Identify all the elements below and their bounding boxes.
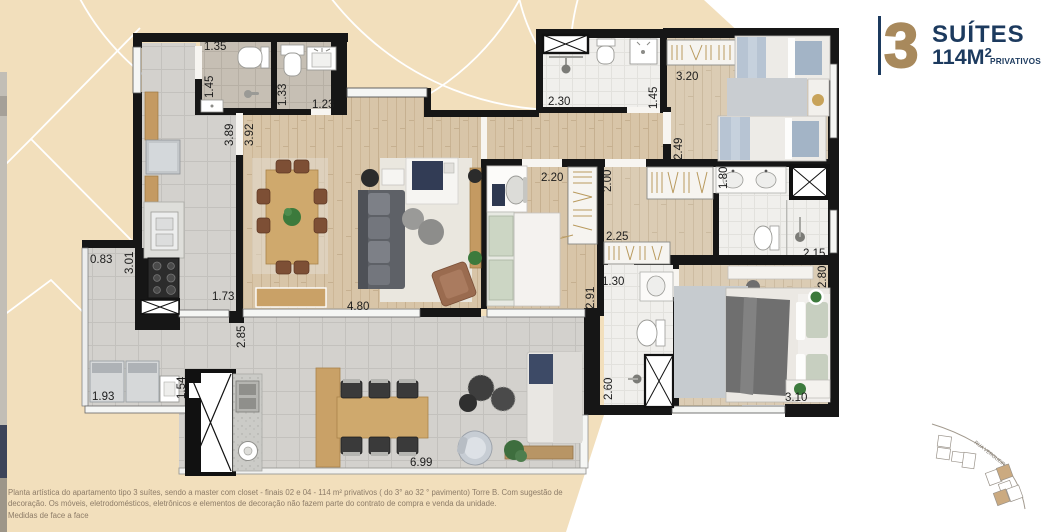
- svg-text:2.85: 2.85: [236, 326, 248, 348]
- svg-text:2.15: 2.15: [803, 248, 825, 260]
- svg-text:0.83: 0.83: [90, 254, 112, 266]
- svg-text:2.00: 2.00: [602, 170, 614, 192]
- svg-text:2.60: 2.60: [603, 378, 615, 400]
- svg-text:2.49: 2.49: [673, 138, 685, 160]
- svg-text:Planta artística do apartament: Planta artística do apartamento tipo 3 s…: [8, 488, 563, 497]
- svg-text:2.20: 2.20: [541, 172, 563, 184]
- svg-text:2.91: 2.91: [585, 287, 597, 309]
- svg-text:1.33: 1.33: [277, 84, 289, 106]
- svg-text:3.20: 3.20: [676, 71, 698, 83]
- svg-text:PRIVATIVOS: PRIVATIVOS: [990, 56, 1041, 66]
- svg-text:114M2: 114M2: [932, 45, 992, 69]
- svg-text:1.35: 1.35: [204, 41, 226, 53]
- svg-text:1.93: 1.93: [92, 391, 114, 403]
- svg-text:decoração. Os móveis, eletrodo: decoração. Os móveis, eletrodomésticos, …: [8, 499, 496, 508]
- svg-text:2.30: 2.30: [548, 96, 570, 108]
- svg-text:1.45: 1.45: [648, 87, 660, 109]
- svg-text:SUÍTES: SUÍTES: [932, 20, 1025, 48]
- svg-text:Medidas de face a face: Medidas de face a face: [8, 511, 89, 520]
- svg-text:1.45: 1.45: [204, 76, 216, 98]
- svg-text:1.23: 1.23: [312, 99, 334, 111]
- svg-text:6.99: 6.99: [410, 457, 432, 469]
- svg-text:3.89: 3.89: [224, 124, 236, 146]
- svg-text:2.25: 2.25: [606, 231, 628, 243]
- svg-text:3: 3: [884, 12, 918, 81]
- svg-text:2.80: 2.80: [817, 266, 829, 288]
- svg-text:1.30: 1.30: [602, 276, 624, 288]
- svg-text:1.54: 1.54: [176, 376, 188, 399]
- svg-text:4.80: 4.80: [347, 301, 369, 313]
- svg-text:3.92: 3.92: [244, 124, 256, 146]
- svg-text:1.73: 1.73: [212, 291, 234, 303]
- svg-text:3.10: 3.10: [785, 392, 807, 404]
- svg-text:1.80: 1.80: [718, 167, 730, 189]
- svg-text:3.01: 3.01: [124, 252, 136, 274]
